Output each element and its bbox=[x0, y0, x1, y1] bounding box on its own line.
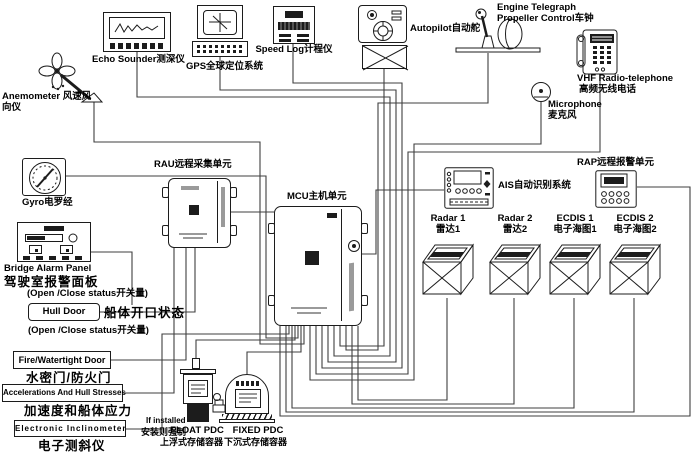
mcu-divider bbox=[341, 209, 342, 321]
wire-hull-door bbox=[100, 248, 195, 312]
fixed-pdc-base bbox=[219, 419, 275, 423]
gps-keys-row2 bbox=[197, 50, 243, 53]
vhf-label-2: 高频无线电话 bbox=[579, 85, 636, 96]
fixed-pdc-dome bbox=[225, 374, 269, 414]
autopilot-device bbox=[358, 5, 407, 43]
gps-monitor bbox=[197, 5, 243, 39]
speed-log-display bbox=[285, 11, 303, 18]
mcu-port bbox=[327, 213, 337, 218]
mcu-label: MCU主机单元 bbox=[287, 192, 347, 203]
accelerations-label-zh: 加速度和船体应力 bbox=[24, 404, 132, 418]
speed-log-label: Speed Log计程仪 bbox=[252, 45, 336, 56]
fixed-pdc-text-bar bbox=[239, 401, 251, 403]
gps-keyboard bbox=[192, 41, 248, 57]
inclinometer-label-zh: 电子测斜仪 bbox=[38, 439, 106, 452]
float-pdc-label: FLOAT PDC bbox=[166, 426, 228, 437]
rau-text-bar bbox=[183, 237, 203, 239]
mcu-speaker-icon bbox=[347, 239, 361, 253]
fixed-pdc-label-zh: 下沉式存储容器 bbox=[224, 437, 287, 447]
wire-fixed-pdc bbox=[247, 326, 301, 374]
autopilot-stand bbox=[362, 45, 407, 69]
float-pdc-text-bar bbox=[191, 392, 201, 394]
rau-lug-icon bbox=[162, 187, 169, 198]
bap-readout-fill bbox=[27, 236, 45, 240]
ecdis2-monitor-icon bbox=[608, 240, 662, 300]
radar2-monitor-icon bbox=[488, 240, 542, 300]
hull-door-label-zh: 船体开口状态 bbox=[104, 306, 185, 320]
wire-fire-door bbox=[111, 248, 186, 360]
microphone-label-2: 麦克风 bbox=[548, 111, 577, 122]
autopilot-helm-icon bbox=[359, 6, 408, 44]
fixed-pdc-text-bar bbox=[239, 393, 257, 395]
gyro-compass-icon bbox=[23, 159, 67, 197]
anemometer-label-2: 向仪 bbox=[2, 103, 21, 114]
bap-open-close-note: (Open /Close status开关量) bbox=[27, 289, 148, 300]
wire-radar2 bbox=[352, 298, 514, 404]
bap-button-dot bbox=[35, 249, 38, 252]
gyro-device bbox=[22, 158, 66, 196]
speed-log-dash2 bbox=[297, 34, 309, 37]
mcu-logo-icon bbox=[305, 251, 319, 265]
rau-unit bbox=[168, 178, 231, 248]
mcu-lug-icon bbox=[268, 223, 275, 234]
gps-label: GPS全球定位系统 bbox=[186, 62, 263, 73]
inclinometer-box: Electronic Inclinometer bbox=[14, 420, 126, 437]
echo-sounder-device bbox=[103, 12, 171, 52]
bap-display bbox=[44, 226, 64, 231]
float-pdc-text-bar bbox=[191, 388, 205, 390]
rau-divider bbox=[217, 181, 218, 243]
rau-brand-strip bbox=[221, 187, 225, 227]
fixed-pdc-vents bbox=[236, 381, 260, 386]
float-pdc-antenna bbox=[192, 358, 200, 369]
bap-readout bbox=[25, 234, 63, 242]
rau-text-bar bbox=[179, 233, 207, 235]
float-pdc-plate bbox=[188, 380, 208, 397]
rau-logo-icon bbox=[189, 205, 199, 215]
mcu-brand-strip bbox=[349, 263, 354, 312]
engine-telegraph-label-2: Propeller Control车钟 bbox=[497, 14, 594, 25]
bap-button-dot bbox=[66, 249, 69, 252]
radar1-monitor-icon bbox=[421, 240, 475, 300]
rau-lug-icon bbox=[162, 225, 169, 236]
ecdis1-monitor-icon bbox=[548, 240, 602, 300]
ecdis2-label-zh: 电子海图2 bbox=[608, 225, 662, 236]
speed-log-dash1 bbox=[279, 34, 291, 37]
float-pdc-label-zh: 上浮式存储容器 bbox=[160, 437, 223, 447]
fixed-pdc-valve-icon bbox=[212, 392, 228, 414]
wire-accelerations bbox=[123, 248, 174, 393]
rap-device-icon bbox=[595, 170, 637, 208]
autopilot-x-icon bbox=[363, 46, 408, 70]
float-pdc-text-bar bbox=[191, 384, 205, 386]
speed-log-strip bbox=[278, 22, 310, 30]
gyro-label: Gyro电罗经 bbox=[22, 198, 73, 209]
echo-trace-icon bbox=[109, 17, 165, 39]
mcu-text-bar bbox=[291, 307, 327, 309]
bap-dial-icon bbox=[68, 233, 78, 243]
bap-button bbox=[29, 245, 42, 254]
gps-crosshair-icon bbox=[203, 10, 237, 35]
speed-log-device bbox=[273, 6, 315, 44]
speed-log-dash3 bbox=[279, 39, 291, 42]
hull-door-box: Hull Door bbox=[28, 303, 100, 321]
fixed-pdc-label: FIXED PDC bbox=[228, 426, 288, 437]
rau-lug-icon bbox=[230, 187, 237, 198]
rau-logo-mark bbox=[181, 186, 199, 190]
speed-log-dash4 bbox=[297, 39, 309, 42]
fire-door-box: Fire/Watertight Door bbox=[13, 351, 111, 369]
mcu-lug-icon bbox=[361, 295, 368, 306]
vdr-wiring-diagram: Echo Sounder测深仪 GPS全球定位系统 Speed Log计程仪 bbox=[0, 0, 700, 452]
rap-label: RAP远程报警单元 bbox=[577, 158, 654, 169]
float-pdc-body bbox=[183, 374, 213, 404]
bap-key-row bbox=[23, 256, 85, 260]
mcu-unit bbox=[274, 206, 362, 326]
vhf-phone-icon bbox=[577, 28, 621, 76]
mcu-lug-icon bbox=[268, 295, 275, 306]
ecdis1-label-zh: 电子海图1 bbox=[548, 225, 602, 236]
bridge-alarm-panel-device bbox=[17, 222, 91, 262]
bap-button bbox=[60, 245, 73, 254]
hull-door-note: (Open /Close status开关量) bbox=[28, 326, 149, 337]
float-pdc-base bbox=[187, 404, 209, 422]
bridge-alarm-panel-label: Bridge Alarm Panel bbox=[4, 264, 91, 275]
radar2-label-zh: 雷达2 bbox=[488, 225, 542, 236]
fixed-pdc-plate bbox=[235, 389, 261, 408]
if-installed-note: If installed bbox=[146, 416, 186, 425]
radar1-label-zh: 雷达1 bbox=[421, 225, 475, 236]
mcu-text-bar bbox=[297, 312, 321, 314]
fixed-pdc-text-bar bbox=[239, 397, 257, 399]
ais-device-icon bbox=[444, 167, 494, 209]
mcu-lug-icon bbox=[361, 223, 368, 234]
rau-label: RAU远程采集单元 bbox=[154, 160, 232, 171]
echo-button-row bbox=[110, 43, 164, 49]
accelerations-box: Accelerations And Hull Stresses bbox=[2, 384, 123, 402]
rau-lug-icon bbox=[230, 225, 237, 236]
gps-keys-row1 bbox=[197, 45, 243, 48]
ais-label: AIS自动识别系统 bbox=[498, 181, 571, 192]
